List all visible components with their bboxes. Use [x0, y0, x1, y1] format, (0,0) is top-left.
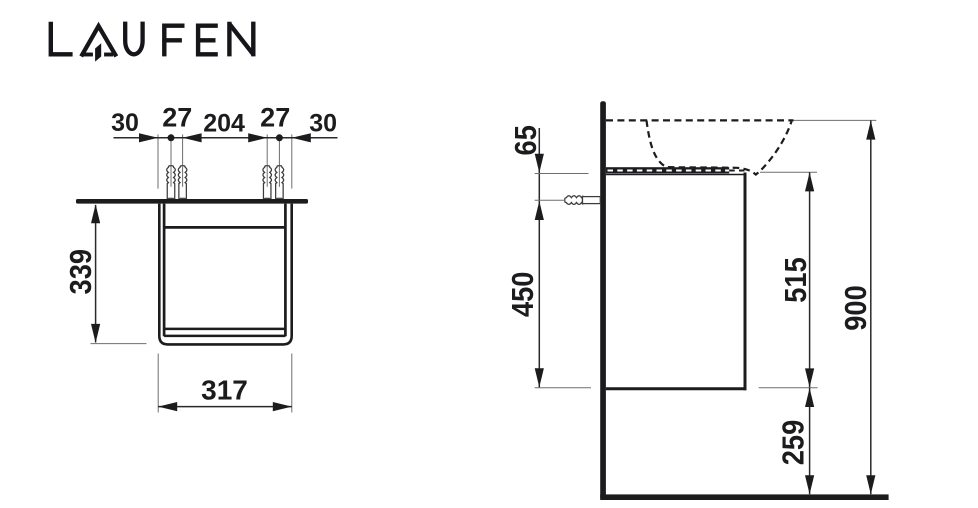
svg-text:515: 515: [780, 257, 814, 303]
svg-text:30: 30: [111, 109, 139, 137]
svg-text:27: 27: [162, 103, 192, 133]
svg-text:259: 259: [777, 420, 811, 466]
svg-text:65: 65: [510, 125, 544, 155]
svg-text:204: 204: [203, 110, 245, 138]
svg-text:900: 900: [839, 285, 873, 331]
svg-text:317: 317: [201, 374, 248, 405]
svg-text:30: 30: [309, 110, 337, 138]
svg-text:450: 450: [506, 272, 540, 318]
svg-text:27: 27: [260, 103, 290, 133]
svg-text:339: 339: [64, 249, 98, 295]
